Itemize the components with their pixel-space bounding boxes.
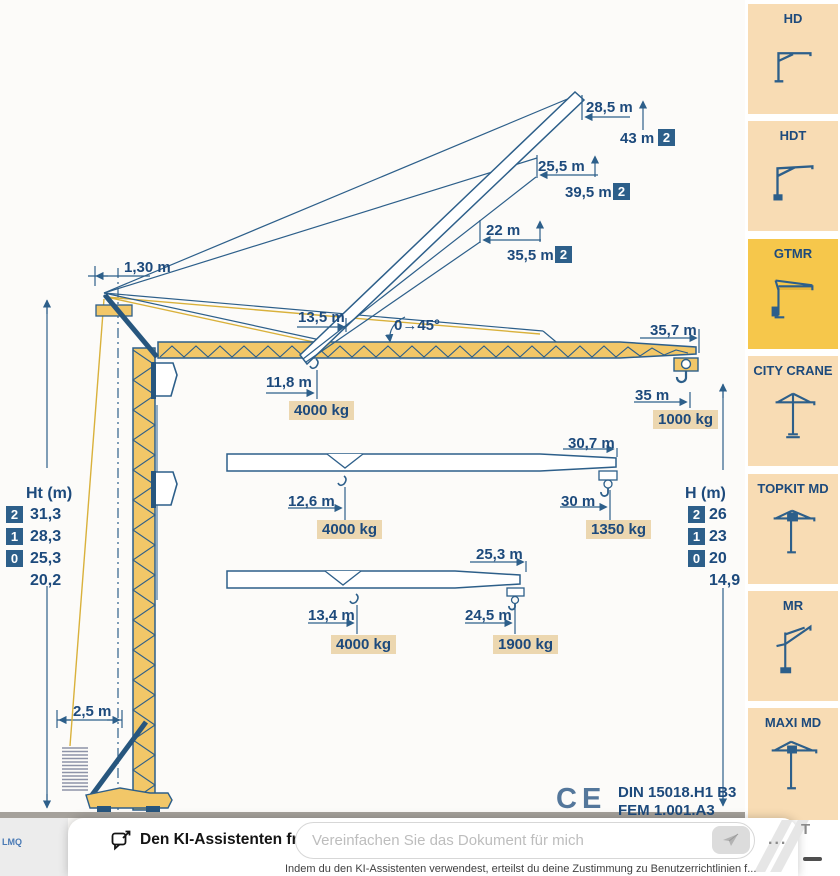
sidebar-item-mr[interactable]: MR xyxy=(748,591,838,701)
sidebar-item-topkit-md[interactable]: TOPKIT MD xyxy=(748,474,838,584)
standard-fem: FEM 1.001.A3 xyxy=(618,802,715,819)
load-label: 1000 kg xyxy=(653,410,718,429)
paper-plane-icon xyxy=(721,832,741,848)
crane-icon-gtmr xyxy=(762,265,824,327)
dim-height-cfg2: 39,5 m xyxy=(565,184,612,201)
sidebar-item-city-crane[interactable]: CITY CRANE xyxy=(748,356,838,466)
load-label: 1900 kg xyxy=(493,635,558,654)
load-label: 4000 kg xyxy=(331,635,396,654)
sidebar-item-label: GTMR xyxy=(748,239,838,261)
config-badge: 2 xyxy=(658,129,675,146)
sidebar-item-label: MAXI MD xyxy=(748,708,838,730)
sidebar-item-maxi-md[interactable]: MAXI MD xyxy=(748,708,838,820)
load-label: 4000 kg xyxy=(317,520,382,539)
crane-icon-mr xyxy=(762,617,824,679)
ce-mark: CE xyxy=(556,783,606,816)
assistant-input[interactable] xyxy=(295,822,755,859)
send-button[interactable] xyxy=(712,826,750,854)
crane-icon-hdt xyxy=(762,147,824,209)
dim-height-cfg3: 35,5 m xyxy=(507,247,554,264)
top-strut xyxy=(105,295,157,357)
h-value: 14,9 xyxy=(709,572,740,590)
sidebar-item-label: TOPKIT MD xyxy=(748,474,838,496)
assistant-disclaimer: Indem du den KI-Assistenten verwendest, … xyxy=(285,863,756,875)
dim-jib2-length: 30,7 m xyxy=(568,435,615,452)
more-options-button[interactable]: ... xyxy=(762,828,790,852)
dim-radius-cfg1: 28,5 m xyxy=(586,99,633,116)
sidebar-item-label: HDT xyxy=(748,121,838,143)
load-label: 1350 kg xyxy=(586,520,651,539)
sidebar-item-hd[interactable]: HD xyxy=(748,4,838,114)
crane-diagram xyxy=(0,0,747,820)
dim-jib2-tip-radius: 30 m xyxy=(561,493,595,510)
dim-jib1-tip-radius: 35 m xyxy=(635,387,669,404)
sidebar-item-label: HD xyxy=(748,4,838,26)
h-value: 20 xyxy=(709,550,727,568)
ht-table-title: Ht (m) xyxy=(26,485,72,503)
dim-jib2-mid-radius: 12,6 m xyxy=(288,493,335,510)
standard-din: DIN 15018.H1 B3 xyxy=(618,784,736,801)
load-label: 4000 kg xyxy=(289,401,354,420)
config-badge: 2 xyxy=(555,246,572,263)
ht-value: 20,2 xyxy=(30,572,61,590)
hook-icon xyxy=(601,488,608,496)
config-badge: 2 xyxy=(613,183,630,200)
h-value: 23 xyxy=(709,528,727,546)
dim-radius-cfg3: 22 m xyxy=(486,222,520,239)
row-badge: 1 xyxy=(6,528,23,545)
h-value: 26 xyxy=(709,506,727,524)
document-viewer: 28,5 m 43 m 2 25,5 m 39,5 m 2 22 m 35,5 … xyxy=(0,0,840,876)
dim-height-cfg1: 43 m xyxy=(620,130,654,147)
sidebar-item-gtmr[interactable]: GTMR xyxy=(748,239,838,349)
crane-icon-maxi-md xyxy=(762,734,824,796)
sidebar-item-hdt[interactable]: HDT xyxy=(748,121,838,231)
ht-value: 25,3 xyxy=(30,550,61,568)
crane-icon-hd xyxy=(762,30,824,92)
dim-inner-radius: 13,5 m xyxy=(298,309,345,326)
dim-jib1-length: 35,7 m xyxy=(650,322,697,339)
hoist-unit xyxy=(153,472,177,505)
ht-value: 31,3 xyxy=(30,506,61,524)
dim-mast-head-offset: 1,30 m xyxy=(124,259,171,276)
row-badge: 0 xyxy=(688,550,705,567)
row-badge: 2 xyxy=(6,506,23,523)
hook-icon xyxy=(677,371,686,382)
page-artifact-glyph: T xyxy=(801,821,810,838)
chat-edit-icon xyxy=(110,829,132,856)
row-badge: 1 xyxy=(688,528,705,545)
crane-icon-city-crane xyxy=(762,382,824,444)
dim-luff-range: 0→45° xyxy=(394,317,440,334)
dim-jib3-length: 25,3 m xyxy=(476,546,523,563)
crane-type-sidebar: HD HDT GTMR xyxy=(745,0,840,876)
dim-jib3-mid-radius: 13,4 m xyxy=(308,607,355,624)
page-edge-gap xyxy=(0,818,68,876)
jib-30 xyxy=(227,448,617,520)
dim-radius-cfg2: 25,5 m xyxy=(538,158,585,175)
h-table-title: H (m) xyxy=(685,485,726,503)
cab xyxy=(153,363,177,396)
ht-value: 28,3 xyxy=(30,528,61,546)
doc-code: LMQ xyxy=(2,837,22,847)
row-badge: 0 xyxy=(6,550,23,567)
dim-base-track: 2,5 m xyxy=(73,703,111,720)
main-jib xyxy=(158,342,698,382)
ai-assistant-bar: Den KI-Assistenten fragen ... Indem du d… xyxy=(68,818,798,876)
scrollbar-thumb[interactable] xyxy=(803,857,822,861)
crane-icon-topkit-md xyxy=(762,500,824,562)
sidebar-item-label: MR xyxy=(748,591,838,613)
row-badge: 2 xyxy=(688,506,705,523)
sidebar-item-label: CITY CRANE xyxy=(748,356,838,378)
dim-jib3-tip-radius: 24,5 m xyxy=(465,607,512,624)
dim-jib1-mid-radius: 11,8 m xyxy=(266,374,312,391)
counterweight-stack xyxy=(62,748,88,790)
